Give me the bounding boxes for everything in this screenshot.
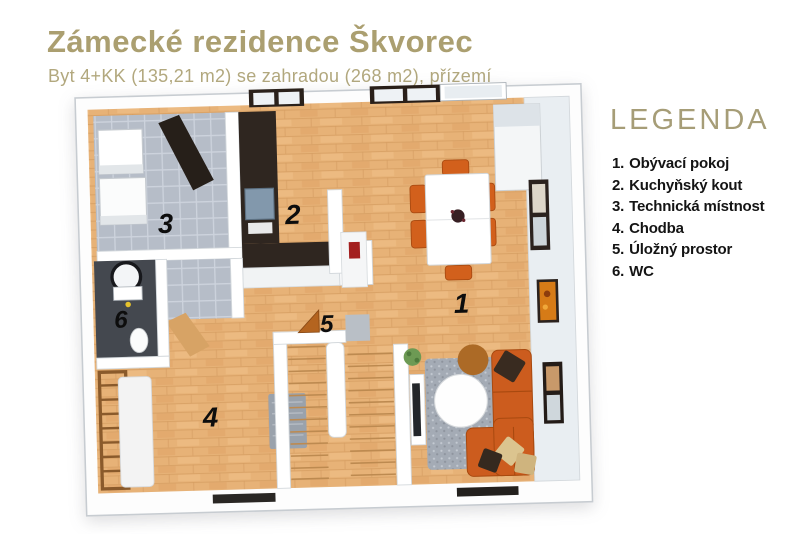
bottom-door-2 bbox=[457, 486, 519, 497]
legend-item-number: 4. bbox=[612, 220, 624, 237]
page-title: Zámecké rezidence Škvorec bbox=[47, 24, 492, 60]
storage-gray-box bbox=[345, 314, 370, 341]
pillow-beige-2 bbox=[514, 452, 537, 475]
floor-plan: 1 2 3 4 5 6 bbox=[50, 82, 600, 522]
room-number-5: 5 bbox=[320, 311, 335, 338]
legend-list: 1.Obývací pokoj 2.Kuchyňský kout 3.Techn… bbox=[612, 153, 795, 282]
bottom-door-1 bbox=[213, 493, 276, 504]
legend-item-number: 3. bbox=[612, 198, 624, 215]
legend-item: 6.WC bbox=[612, 261, 795, 283]
wall-wc-bottom bbox=[97, 356, 170, 369]
room-wc bbox=[94, 259, 170, 369]
legend: LEGENDA 1.Obývací pokoj 2.Kuchyňský kout… bbox=[610, 104, 795, 282]
room-number-1: 1 bbox=[453, 288, 469, 319]
legend-item: 2.Kuchyňský kout bbox=[612, 175, 795, 197]
wall-painting bbox=[538, 280, 558, 321]
room-number-4: 4 bbox=[201, 401, 218, 432]
room-number-2: 2 bbox=[284, 199, 302, 230]
kitchen-counter-bottom bbox=[242, 241, 339, 268]
coffee-machine bbox=[349, 242, 360, 259]
room-technical bbox=[93, 112, 242, 262]
legend-item-label: Technická místnost bbox=[629, 198, 764, 215]
legend-item-number: 5. bbox=[612, 241, 624, 258]
legend-item-number: 1. bbox=[612, 155, 624, 172]
room-number-6: 6 bbox=[114, 307, 129, 334]
legend-item: 3.Technická místnost bbox=[612, 196, 795, 218]
wall-wc-right bbox=[156, 259, 170, 356]
room-number-3: 3 bbox=[157, 208, 173, 239]
legend-item-label: WC bbox=[629, 263, 654, 280]
legend-item-label: Chodba bbox=[629, 220, 684, 237]
legend-item-label: Úložný prostor bbox=[629, 241, 732, 258]
cooktop bbox=[245, 188, 274, 220]
legend-item-number: 6. bbox=[612, 263, 624, 280]
bench-mattress bbox=[118, 376, 154, 487]
tv-screen bbox=[412, 383, 421, 436]
coffee-table bbox=[434, 374, 488, 428]
legend-item-label: Kuchyňský kout bbox=[629, 177, 742, 194]
legend-item: 1.Obývací pokoj bbox=[612, 153, 795, 175]
kitchen-cabinet-front bbox=[243, 266, 340, 288]
wc-sink bbox=[113, 286, 142, 300]
page: { "header": { "title": "Zámecké rezidenc… bbox=[0, 0, 800, 534]
header: Zámecké rezidence Škvorec Byt 4+KK (135,… bbox=[47, 24, 492, 87]
stair-spine-wall bbox=[326, 342, 346, 437]
legend-title: LEGENDA bbox=[610, 104, 795, 137]
legend-item: 4.Chodba bbox=[612, 218, 795, 240]
legend-item-label: Obývací pokoj bbox=[629, 155, 729, 172]
wall-vestibule-right bbox=[230, 258, 244, 318]
legend-item-number: 2. bbox=[612, 177, 624, 194]
kitchen-island bbox=[341, 232, 368, 288]
wc-toilet bbox=[130, 328, 148, 353]
legend-item: 5.Úložný prostor bbox=[612, 239, 795, 261]
